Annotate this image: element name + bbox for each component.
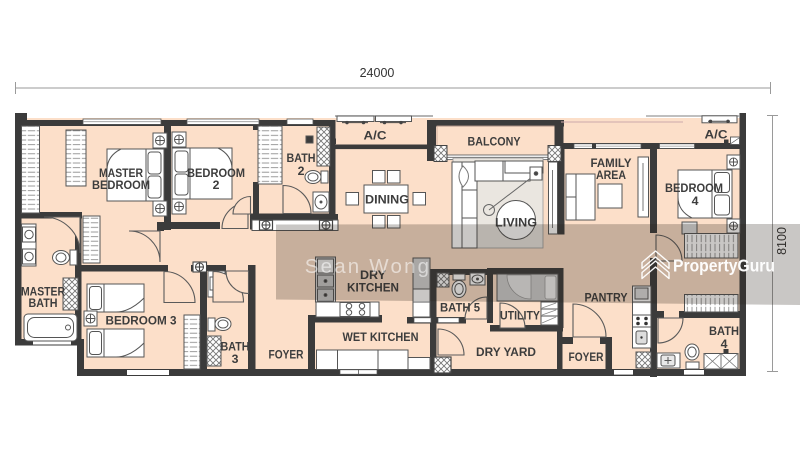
svg-text:4: 4 (721, 337, 728, 351)
svg-text:DRY YARD: DRY YARD (476, 345, 536, 359)
svg-text:BATH: BATH (287, 151, 316, 165)
svg-text:Sean Wong: Sean Wong (305, 255, 432, 278)
svg-text:BEDROOM: BEDROOM (665, 181, 723, 195)
svg-text:3: 3 (232, 352, 239, 366)
svg-text:WET KITCHEN: WET KITCHEN (343, 330, 419, 344)
svg-text:A/C: A/C (364, 129, 387, 143)
svg-text:FOYER: FOYER (569, 350, 604, 364)
svg-text:A/C: A/C (705, 128, 728, 142)
svg-text:4: 4 (692, 194, 699, 208)
svg-text:2: 2 (298, 164, 305, 178)
svg-text:FOYER: FOYER (269, 348, 304, 362)
svg-text:AREA: AREA (596, 168, 626, 182)
svg-text:BEDROOM 3: BEDROOM 3 (106, 314, 177, 328)
svg-text:BEDROOM: BEDROOM (92, 178, 150, 192)
svg-text:DINING: DINING (365, 193, 409, 207)
svg-text:BATH 5: BATH 5 (440, 301, 480, 315)
svg-text:UTILITY: UTILITY (500, 309, 540, 323)
svg-text:BATH: BATH (29, 296, 58, 310)
svg-text:BATH: BATH (709, 324, 739, 338)
svg-text:24000: 24000 (360, 66, 395, 80)
svg-text:PropertyGuru: PropertyGuru (673, 256, 775, 276)
svg-text:2: 2 (213, 178, 220, 192)
svg-text:BALCONY: BALCONY (468, 135, 521, 149)
